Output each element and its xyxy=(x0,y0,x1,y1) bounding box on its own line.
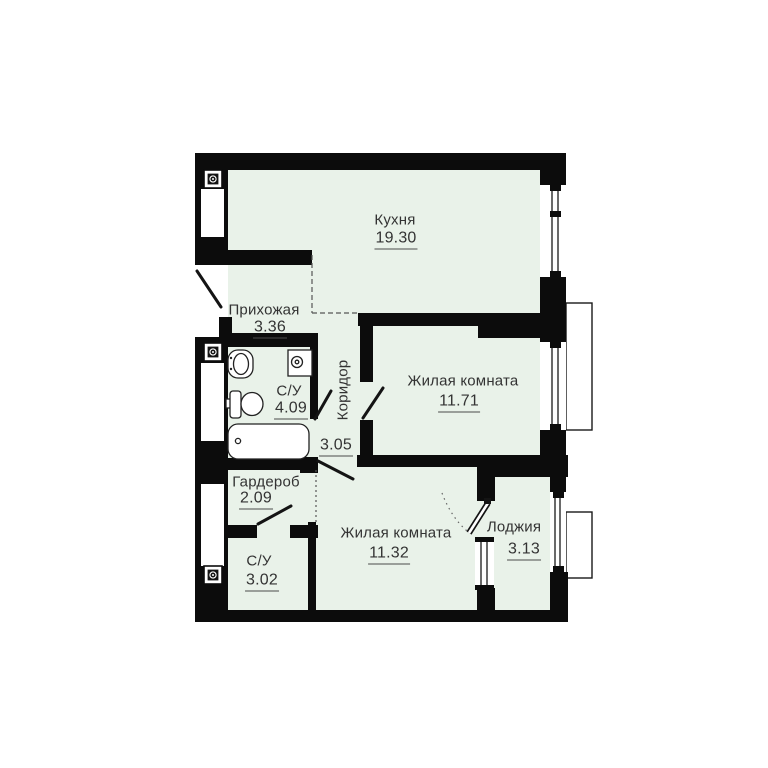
room-label-living-2: Жилая комната xyxy=(341,526,452,541)
room-label-corridor: Коридор xyxy=(336,360,351,421)
room-area-corridor: 3.05 xyxy=(319,438,353,457)
balcony-slab xyxy=(566,303,592,430)
room-area-bathroom-2: 3.02 xyxy=(245,573,279,592)
floor-plan: Кухня 19.30 Прихожая 3.36 С/У 4.09 Корид… xyxy=(0,0,768,768)
wall xyxy=(550,572,568,612)
wall xyxy=(360,313,373,382)
bathtub-symbol xyxy=(228,424,309,459)
wall xyxy=(477,588,495,612)
balcony-slabs xyxy=(566,303,592,578)
entrance-door-leaf xyxy=(197,271,221,307)
living-1-window xyxy=(540,342,566,430)
wall xyxy=(540,277,566,342)
room-area-living-2: 11.32 xyxy=(368,546,410,565)
loggia-window xyxy=(550,492,566,572)
ventilation-shaft-icon xyxy=(204,170,222,188)
room-area-kitchen: 19.30 xyxy=(374,231,417,250)
room-label-wardrobe: Гардероб xyxy=(232,475,300,490)
wall xyxy=(195,610,568,622)
washing-machine-symbol xyxy=(288,350,312,376)
room-label-bathroom-2: С/У xyxy=(246,554,271,569)
living-2-loggia-window xyxy=(475,537,494,590)
room-area-wardrobe: 2.09 xyxy=(239,491,273,510)
wall xyxy=(540,153,566,185)
wall xyxy=(195,153,566,170)
shaft xyxy=(200,362,225,442)
wall xyxy=(360,420,373,455)
kitchen-window xyxy=(540,185,566,277)
ventilation-shaft-icon xyxy=(204,343,222,361)
wall xyxy=(477,477,495,501)
shaft xyxy=(200,483,225,567)
wall xyxy=(358,313,540,326)
shaft xyxy=(200,188,225,238)
wall xyxy=(550,455,566,492)
wall xyxy=(228,525,257,538)
room-label-loggia: Лоджия xyxy=(487,520,541,535)
room-area-living-1: 11.71 xyxy=(438,394,480,413)
wall xyxy=(308,522,316,610)
sink-symbol xyxy=(228,350,253,378)
room-label-hallway: Прихожая xyxy=(228,303,299,318)
room-area-loggia: 3.13 xyxy=(507,542,541,561)
balcony-slab xyxy=(566,512,592,578)
room-label-kitchen: Кухня xyxy=(374,213,415,228)
room-label-living-1: Жилая комната xyxy=(408,374,519,389)
room-label-bathroom-1: С/У xyxy=(276,384,301,399)
wall xyxy=(228,458,318,470)
room-area-hallway: 3.36 xyxy=(253,320,287,339)
floor-plan-drawing xyxy=(0,0,768,768)
ventilation-shaft-icon xyxy=(204,566,222,584)
wall xyxy=(357,455,477,467)
wall xyxy=(218,250,312,265)
wall xyxy=(478,326,540,338)
room-area-bathroom-1: 4.09 xyxy=(274,401,308,420)
